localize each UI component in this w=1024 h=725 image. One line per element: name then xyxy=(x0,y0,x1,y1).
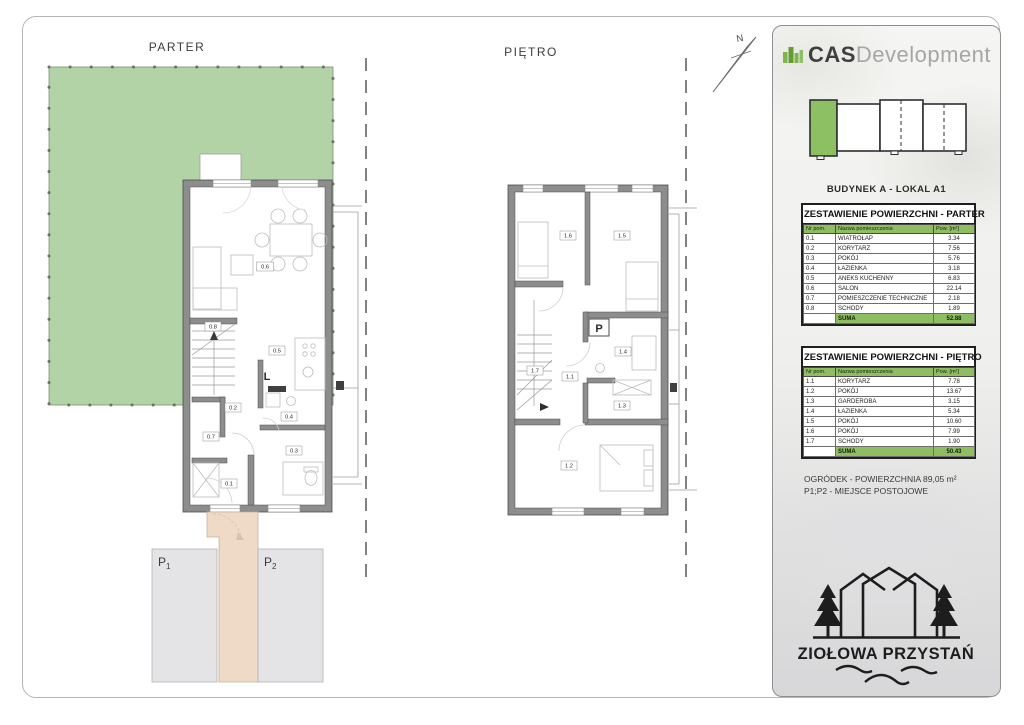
table-pietro: Nr pom.Nazwa pomieszczeniaPow. [m²]1.1KO… xyxy=(803,367,975,457)
ziolowa-przystan-logo: ZIOŁOWA PRZYSTAŃ xyxy=(773,564,1000,697)
area-table-pietro: ZESTAWIENIE POWIERZCHNI - PIĘTRO Nr pom.… xyxy=(801,346,976,459)
table-row: 0.8SCHODY1.89 xyxy=(804,304,975,314)
table-header-row: Nr pom.Nazwa pomieszczeniaPow. [m²] xyxy=(804,368,975,377)
brand-logo: CASDevelopment xyxy=(773,42,1000,68)
svg-text:0.3: 0.3 xyxy=(290,449,298,455)
table-parter: Nr pom.Nazwa pomieszczeniaPow. [m²]0.1WI… xyxy=(803,224,975,324)
table-row: 1.7SCHODY1.90 xyxy=(804,437,975,447)
brand-name-light: Development xyxy=(856,42,991,67)
north-label: N xyxy=(736,33,745,45)
notes-block: OGRÓDEK - POWIERZCHNIA 89,05 m² P1;P2 - … xyxy=(804,473,957,498)
floor-plan-parter: 0.6 0.8 0.5 0.2 0.4 0.7 0.3 0.1 L xyxy=(183,154,362,512)
floor-plan-pietro: P 1.6 1.5 1.4 1.7 1.1 xyxy=(508,185,697,515)
meter-box-2 xyxy=(670,383,677,392)
table-row: 0.6SALON22.14 xyxy=(804,284,975,294)
logo-tree-right-icon xyxy=(930,584,958,637)
svg-text:1.6: 1.6 xyxy=(564,234,572,240)
table-sum-row: SUMA50.43 xyxy=(804,447,975,457)
svg-text:0.5: 0.5 xyxy=(273,349,281,355)
pietro-title: PIĘTRO xyxy=(504,45,558,59)
logo-waves-icon xyxy=(836,666,937,684)
svg-text:0.6: 0.6 xyxy=(261,265,269,271)
svg-text:0.2: 0.2 xyxy=(229,406,237,412)
table-sum-row: SUMA52.88 xyxy=(804,314,975,324)
svg-text:0.4: 0.4 xyxy=(285,415,294,421)
table-title-pietro: ZESTAWIENIE POWIERZCHNI - PIĘTRO xyxy=(803,348,974,367)
table-row: 1.3GARDEROBA3.15 xyxy=(804,397,975,407)
parter-title: PARTER xyxy=(149,40,206,54)
north-arrow-icon: N xyxy=(713,33,756,92)
table-header-row: Nr pom.Nazwa pomieszczeniaPow. [m²] xyxy=(804,225,975,234)
logo-tree-left-icon xyxy=(814,584,842,637)
note-parking: P1;P2 - MIEJSCE POSTOJOWE xyxy=(804,485,957,497)
svg-text:0.7: 0.7 xyxy=(207,435,215,441)
table-row: 0.7POMIESZCZENIE TECHNICZNE2.18 xyxy=(804,294,975,304)
table-row: 0.4ŁAZIENKA3.18 xyxy=(804,264,975,274)
svg-text:1.7: 1.7 xyxy=(531,369,539,375)
washer-box: P xyxy=(589,319,609,336)
units-diagram xyxy=(773,94,1000,174)
table-row: 1.6POKÓJ7.99 xyxy=(804,427,975,437)
meter-box xyxy=(336,381,344,390)
table-row: 1.4ŁAZIENKA5.34 xyxy=(804,407,975,417)
brand-name-bold: CAS xyxy=(808,42,856,67)
svg-text:P: P xyxy=(595,323,602,335)
table-row: 0.1WIATROŁAP3.34 xyxy=(804,234,975,244)
note-garden: OGRÓDEK - POWIERZCHNIA 89,05 m² xyxy=(804,473,957,485)
svg-text:0.8: 0.8 xyxy=(209,325,217,331)
building-label: BUDYNEK A - LOKAL A1 xyxy=(773,184,1000,195)
logo-text: ZIOŁOWA PRZYSTAŃ xyxy=(798,644,975,663)
svg-text:1.3: 1.3 xyxy=(618,404,626,410)
table-row: 0.5ANEKS KUCHENNY6.83 xyxy=(804,274,975,284)
svg-text:1.4: 1.4 xyxy=(619,350,628,356)
floor-plan-sheet: PARTER PIĘTRO N xyxy=(0,0,1024,725)
table-row: 1.2POKÓJ13.67 xyxy=(804,387,975,397)
svg-text:0.1: 0.1 xyxy=(225,482,233,488)
area-table-parter: ZESTAWIENIE POWIERZCHNI - PARTER Nr pom.… xyxy=(801,203,976,326)
table-row: 0.3POKÓJ5.76 xyxy=(804,254,975,264)
table-row: 1.5POKÓJ10.60 xyxy=(804,417,975,427)
terrace-block xyxy=(200,154,241,181)
cas-logo-icon xyxy=(782,43,804,65)
svg-text:1.5: 1.5 xyxy=(618,234,626,240)
table-title-parter: ZESTAWIENIE POWIERZCHNI - PARTER xyxy=(803,205,974,224)
parter-neighbour-outline xyxy=(333,206,362,484)
pietro-neighbour-outline xyxy=(669,208,697,490)
fridge-label: L xyxy=(264,371,271,383)
table-row: 0.2KORYTARZ7.56 xyxy=(804,244,975,254)
info-sidebar: CASDevelopment BUDYNEK A - LOKAL A1 ZEST… xyxy=(772,25,1001,697)
svg-text:1.1: 1.1 xyxy=(566,375,574,381)
unit-a1-highlight xyxy=(810,100,837,156)
table-row: 1.1KORYTARZ7.78 xyxy=(804,377,975,387)
parking-area: P1 P2 xyxy=(152,512,323,682)
svg-text:1.2: 1.2 xyxy=(565,464,573,470)
radiator xyxy=(268,386,286,392)
